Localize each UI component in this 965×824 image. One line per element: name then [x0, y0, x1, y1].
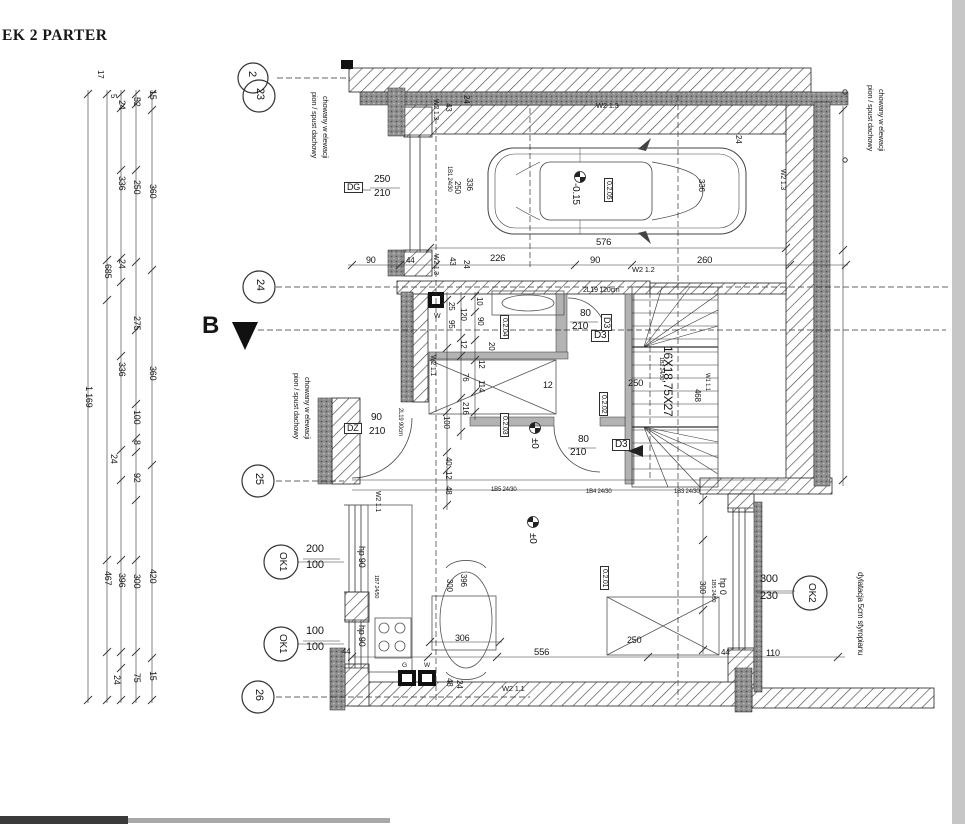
label-g2: 2 [246, 71, 257, 77]
label-r03: 0.2.03 [500, 413, 509, 437]
label-n200: 200 [306, 544, 324, 555]
label-n90: 90 [476, 317, 484, 326]
label-n80: 80 [578, 435, 589, 445]
label-n468: 468 [693, 389, 701, 402]
label-n120: 120 [459, 308, 467, 321]
label-pion2: chowany w elewacji [878, 89, 886, 151]
section-marker-triangle [232, 322, 258, 350]
label-n300: 300 [760, 574, 778, 585]
floor-plan-page: EK 2 PARTERB2232425261752452153362503602… [0, 0, 965, 824]
label-b2: 1B2 24/30 [658, 357, 664, 380]
scan-artifact [0, 816, 128, 824]
label-b7: 1B7 24/50 [373, 575, 379, 598]
label-n24: 24 [462, 260, 470, 269]
label-n226: 226 [490, 254, 505, 264]
label-n24: 24 [112, 675, 121, 685]
label-n114: 114 [477, 380, 485, 392]
label-n20: 20 [487, 342, 495, 351]
label-n90: 90 [366, 256, 376, 265]
label-w213: W2 1.3 [432, 254, 439, 275]
label-w213: W2 1.3 [596, 102, 619, 110]
label-title: EK 2 PARTER [2, 28, 107, 44]
car [488, 138, 746, 244]
label-g26: 26 [253, 689, 264, 701]
label-n12: 12 [477, 360, 485, 369]
label-n556: 556 [534, 648, 549, 658]
label-n336: 336 [465, 178, 473, 191]
label-n12: 12 [444, 471, 452, 480]
label-hp90: hp 90 [357, 625, 366, 647]
label-w211: W2 1.1 [374, 491, 381, 512]
label-n250: 250 [627, 636, 641, 645]
label-total: 1 169 [84, 386, 93, 408]
label-n48: 48 [444, 486, 452, 495]
label-n216: 216 [461, 402, 469, 415]
label-n685: 685 [103, 264, 112, 278]
label-r05: 0.2.05 [604, 178, 613, 202]
label-n100: 100 [442, 416, 450, 429]
label-n12: 12 [543, 381, 553, 390]
label-pion2: chowany w elewacji [304, 377, 312, 439]
label-n260: 260 [697, 256, 712, 266]
label-n250: 250 [628, 379, 643, 389]
label-n25: 25 [447, 302, 455, 311]
label-n44: 44 [406, 257, 415, 265]
label-ok2: OK2 [806, 583, 816, 602]
label-wMeter: W [424, 663, 430, 670]
label-n210: 210 [572, 322, 588, 332]
floor-plan-drawing [0, 0, 965, 824]
label-n396: 396 [459, 574, 467, 587]
label-n336: 336 [117, 362, 126, 376]
label-dg: DG [344, 182, 363, 193]
label-n12: 12 [459, 340, 467, 349]
label-n300: 300 [445, 579, 453, 592]
label-n92: 92 [132, 473, 141, 483]
label-n40: 40 [444, 457, 452, 466]
label-d3: D3 [601, 314, 612, 331]
label-pion1: pion / spust dachowy [311, 92, 319, 158]
label-n100: 100 [306, 642, 324, 653]
label-dylatacja: dylatacja 5cm styropianu [856, 572, 864, 655]
label-n43: 43 [448, 257, 456, 266]
label-pion1: pion / spust dachowy [293, 373, 301, 439]
label-w213: W2 1.3 [432, 99, 439, 120]
label-n250: 250 [132, 180, 141, 194]
label-d3: D3 [612, 439, 630, 451]
label-n100: 100 [306, 560, 324, 571]
label-n80: 80 [580, 309, 591, 319]
label-r04: 0.2.04 [500, 315, 509, 339]
label-sectionB: B [202, 314, 219, 338]
label-n250: 250 [374, 175, 390, 185]
label-n300: 300 [698, 581, 706, 594]
label-n24: 24 [462, 95, 470, 104]
label-n467: 467 [103, 571, 112, 585]
label-n306: 306 [455, 634, 469, 643]
label-dz: DZ [344, 423, 362, 434]
label-n275: 275 [132, 316, 141, 330]
page-edge-strip [952, 0, 965, 824]
label-n24: 24 [117, 100, 126, 110]
label-n24: 24 [109, 454, 118, 464]
label-n100: 100 [132, 410, 141, 424]
label-n210: 210 [570, 448, 586, 458]
label-n24: 24 [455, 680, 463, 689]
label-r02: 0.2.02 [599, 392, 608, 416]
label-n44: 44 [721, 649, 730, 657]
label-b4: 1B4 24/30 [586, 489, 612, 495]
label-n230: 230 [760, 591, 778, 602]
label-n90: 90 [590, 256, 600, 266]
label-lev015: -0.15 [570, 183, 580, 205]
label-n8: 8 [132, 440, 141, 445]
label-w212: W2 1.2 [632, 266, 655, 274]
label-b5b: 1B5 24/50 [710, 579, 716, 602]
label-n336: 336 [697, 179, 705, 192]
label-b1: 1B1 24/30 [446, 166, 452, 192]
label-n336: 336 [117, 176, 126, 190]
label-n15: 15 [148, 671, 157, 681]
label-n300: 300 [132, 574, 141, 588]
label-w211: W2 1.1 [502, 685, 525, 693]
label-n24: 24 [734, 135, 742, 144]
label-n43: 43 [444, 103, 452, 112]
label-n210: 210 [374, 189, 390, 199]
label-n5: 5 [109, 94, 117, 98]
label-b3: 1B3 24/30 [674, 489, 700, 495]
label-n420: 420 [148, 569, 157, 583]
label-n360: 360 [148, 366, 157, 380]
label-hp0: hp 0 [718, 578, 727, 595]
label-lev0: ±0 [527, 533, 537, 544]
label-n10: 10 [475, 297, 483, 306]
label-l90: 2L19 90cm [397, 408, 403, 436]
label-n44: 44 [342, 648, 351, 656]
label-n95: 95 [447, 320, 455, 329]
label-n210: 210 [369, 427, 385, 437]
label-ok1: OK1 [277, 634, 287, 653]
label-pion1: pion / spust dachowy [867, 85, 875, 151]
label-n576: 576 [596, 238, 611, 248]
label-n360: 360 [148, 184, 157, 198]
label-n75: 75 [132, 673, 141, 683]
label-gMeter: G [402, 663, 407, 670]
label-l120: 2L19 120cm [583, 287, 620, 294]
label-n90: 90 [371, 413, 382, 423]
label-n48: 48 [445, 678, 453, 687]
label-g25: 25 [253, 473, 264, 485]
label-n15: 15 [148, 90, 157, 100]
label-w211: W2 1.1 [429, 355, 436, 376]
label-r01: 0.2.01 [600, 566, 609, 590]
label-n24: 24 [117, 259, 126, 269]
label-n250: 250 [453, 181, 461, 194]
label-g24: 24 [254, 279, 265, 291]
label-b5: 1B5 24/30 [491, 487, 517, 493]
label-hp90: hp 90 [357, 546, 366, 568]
label-lev0: ±0 [529, 438, 539, 449]
label-n52: 52 [132, 97, 141, 107]
label-g23: 23 [254, 88, 265, 100]
label-w213: W2 1.3 [779, 169, 786, 190]
label-n396: 396 [117, 573, 126, 587]
label-n17: 17 [96, 70, 104, 79]
label-pion2: chowany w elewacji [322, 96, 330, 158]
label-wMeter: W [434, 313, 440, 320]
label-w11: W1 1.1 [704, 373, 710, 391]
scan-artifact-light [128, 818, 390, 823]
label-d3: D3 [591, 330, 609, 342]
label-n110: 110 [766, 649, 780, 658]
label-ok1: OK1 [277, 552, 287, 571]
label-n76: 76 [461, 373, 469, 382]
label-n100: 100 [306, 626, 324, 637]
